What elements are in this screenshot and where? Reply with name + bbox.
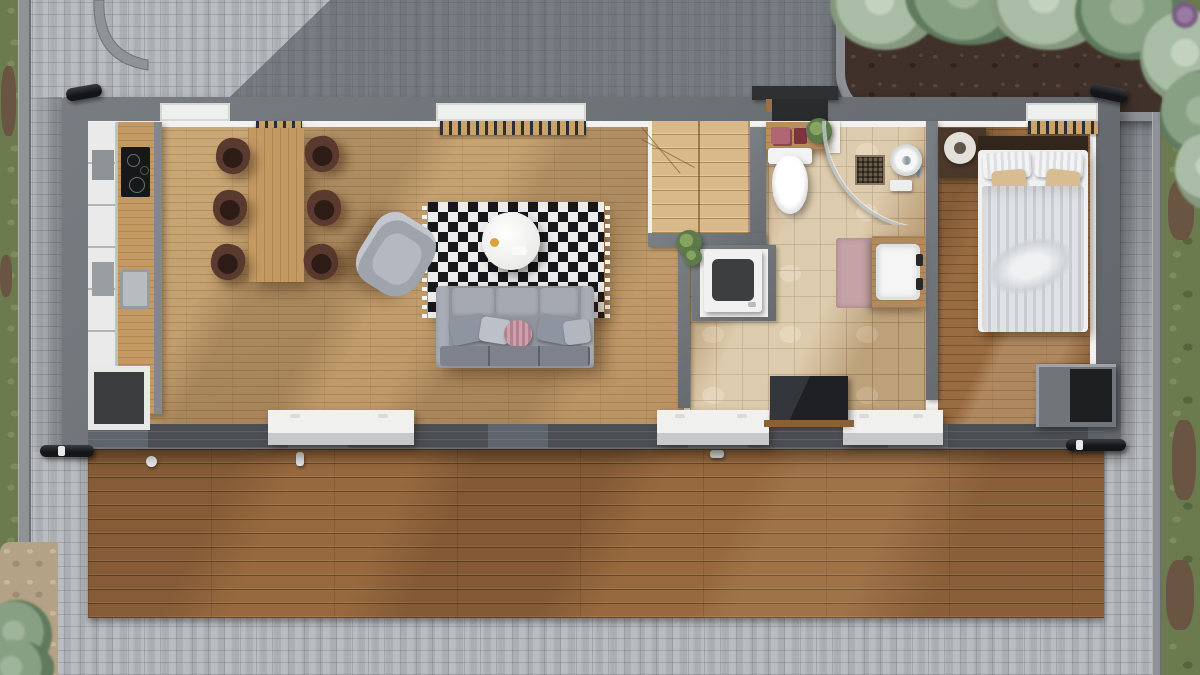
pipe-clamp: [1076, 440, 1083, 450]
curb-right: [1152, 112, 1162, 675]
bath-mat: [836, 238, 874, 308]
double-bed: [978, 136, 1088, 332]
wardrobe: [1036, 364, 1116, 427]
door-handle: [296, 452, 304, 466]
books: [771, 127, 790, 144]
sideboard: [657, 410, 769, 445]
vanity-basin: [876, 244, 920, 300]
sofa-backrest: [440, 346, 590, 366]
drain-pipe: [40, 445, 94, 457]
door-handle: [710, 450, 724, 458]
burner: [140, 166, 149, 175]
faucet-handle: [916, 278, 923, 290]
terrace-deck: [88, 448, 1104, 618]
slatted-vent: [1028, 121, 1098, 134]
washing-machine: [704, 250, 762, 312]
pipe-clamp: [58, 446, 65, 456]
cooktop: [121, 147, 150, 197]
sideboard: [843, 410, 943, 445]
sofa-pillow: [562, 318, 591, 345]
burner: [127, 154, 140, 167]
bedside-lamp: [944, 132, 976, 164]
dirt-patch: [1172, 420, 1196, 500]
vanity: [872, 236, 926, 308]
cabinet-open-shelf: [92, 262, 114, 296]
living-window: [436, 103, 586, 121]
burner: [129, 177, 145, 193]
floor-plan-scene: [0, 0, 1200, 675]
dirt-patch: [1166, 560, 1194, 630]
pavement-shadow-west: [30, 97, 62, 452]
curb-arc-top-left: [90, 0, 180, 80]
entry-canopy: [752, 86, 838, 100]
cabinet-open-shelf: [92, 150, 114, 180]
armchair-cushion: [366, 228, 427, 291]
stair-winder: [642, 139, 695, 168]
tv-ledge: [764, 420, 854, 427]
dirt-patch: [1, 66, 16, 136]
toilet: [772, 156, 808, 214]
slatted-bench: [440, 121, 586, 135]
kitchen-sink: [120, 269, 150, 309]
sideboard: [268, 410, 414, 445]
dirt-patch: [0, 255, 12, 297]
drain-pipe: [1066, 439, 1126, 451]
staircase: [648, 121, 750, 233]
stair-divider: [698, 121, 700, 233]
washer-lid: [712, 259, 754, 301]
stair-winder: [641, 127, 680, 174]
faucet: [916, 254, 923, 266]
sofa: [436, 286, 594, 368]
notepad: [512, 246, 526, 255]
washer-knob: [748, 302, 756, 307]
rain-shower-head: [890, 144, 922, 176]
open-base-cabinet: [88, 366, 150, 430]
kitchen-window: [160, 103, 230, 121]
tv-panel: [770, 376, 848, 424]
shower-shelf: [890, 180, 912, 191]
seat-cushion: [496, 288, 538, 318]
accent-pillow-pink: [504, 320, 532, 348]
shower-drain: [855, 155, 885, 185]
potted-plant: [684, 248, 702, 266]
cup: [490, 238, 499, 247]
dining-table: [248, 128, 304, 282]
sliding-door-track: [88, 424, 1104, 448]
flower-patch: [1172, 0, 1198, 30]
wall-stair-side: [750, 127, 766, 245]
bedroom-window: [1026, 103, 1098, 121]
deck-vase: [146, 456, 157, 467]
shower-head-center: [902, 156, 911, 165]
wall-bath-bedroom: [926, 121, 938, 400]
wardrobe-open-section: [1070, 369, 1112, 422]
